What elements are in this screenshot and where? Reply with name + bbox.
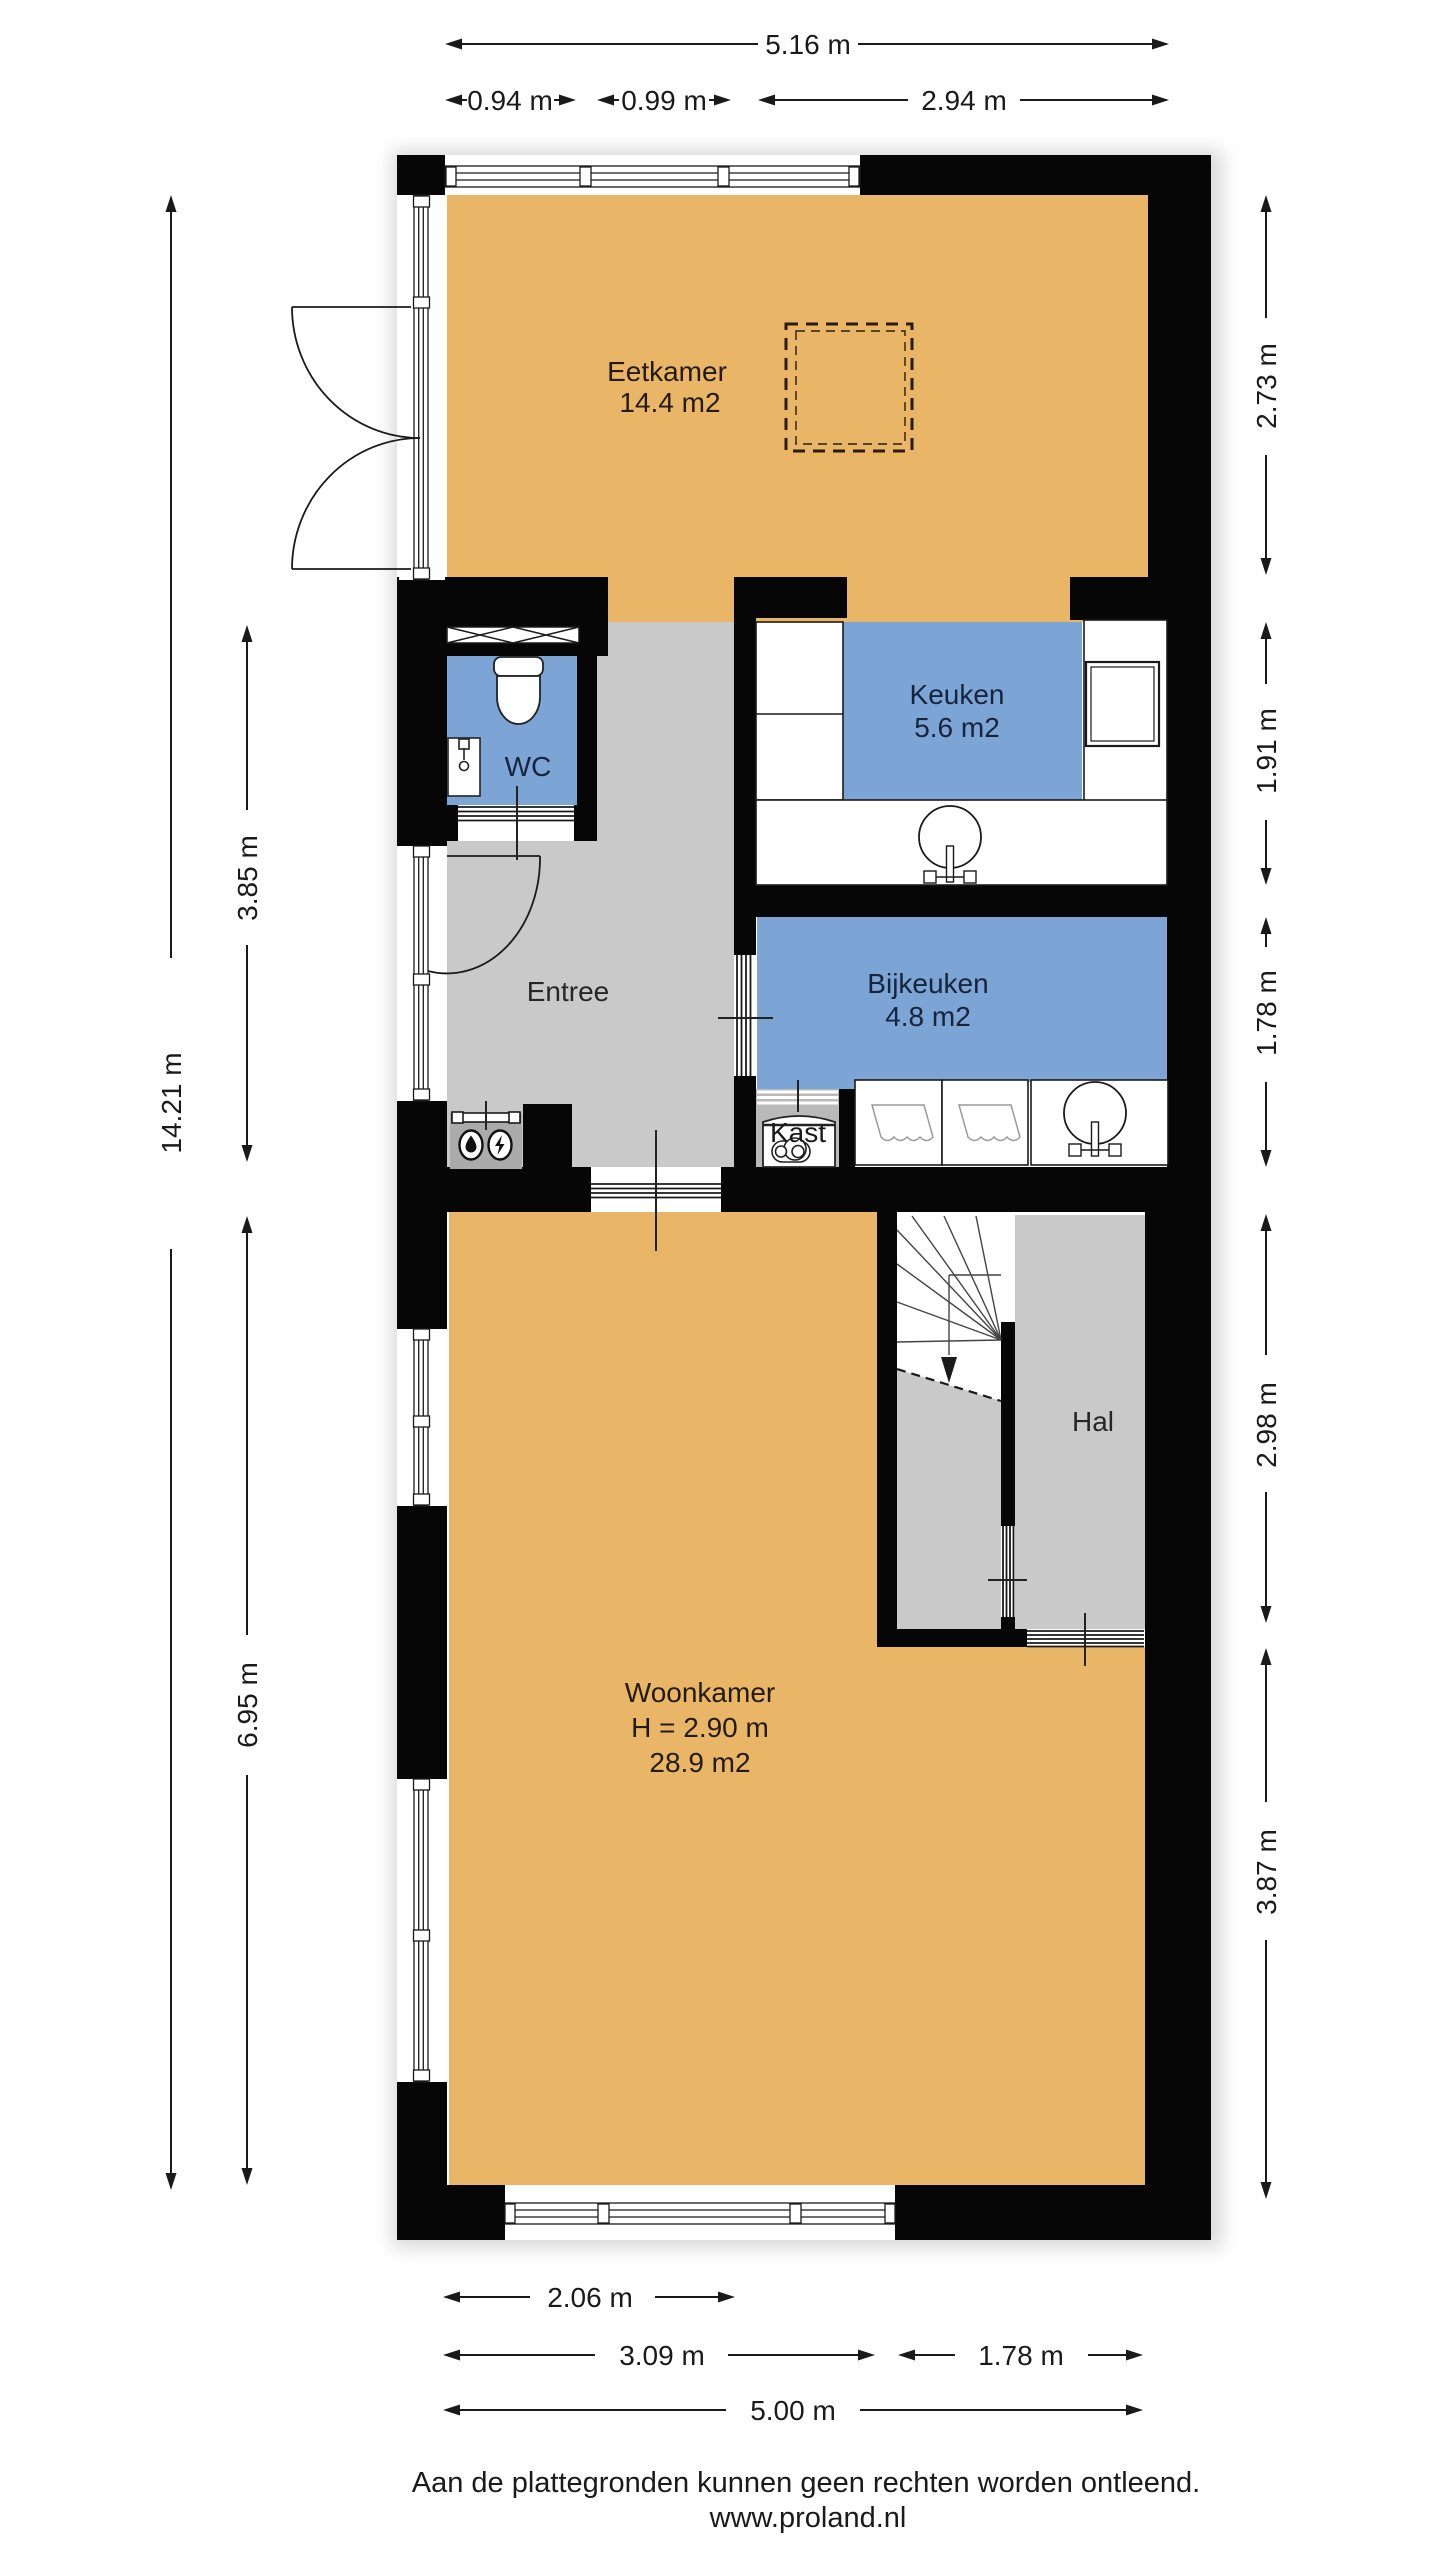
- svg-text:2.06 m: 2.06 m: [547, 2282, 633, 2313]
- svg-text:WC: WC: [505, 751, 552, 782]
- svg-text:5.6 m2: 5.6 m2: [914, 712, 1000, 743]
- svg-text:28.9 m2: 28.9 m2: [649, 1747, 750, 1778]
- svg-text:5.16 m: 5.16 m: [765, 29, 851, 60]
- svg-text:Woonkamer: Woonkamer: [625, 1677, 775, 1708]
- svg-text:Bijkeuken: Bijkeuken: [867, 968, 988, 999]
- svg-text:2.98 m: 2.98 m: [1251, 1382, 1282, 1468]
- svg-text:3.87 m: 3.87 m: [1251, 1829, 1282, 1915]
- svg-text:14.4 m2: 14.4 m2: [619, 387, 720, 418]
- svg-text:Aan de plattegronden kunnen ge: Aan de plattegronden kunnen geen rechten…: [412, 2467, 1200, 2499]
- svg-text:Kast: Kast: [770, 1117, 826, 1148]
- svg-text:5.00 m: 5.00 m: [750, 2395, 836, 2426]
- svg-text:Entree: Entree: [527, 976, 610, 1007]
- svg-text:1.78 m: 1.78 m: [1251, 970, 1282, 1056]
- svg-text:2.73 m: 2.73 m: [1251, 343, 1282, 429]
- svg-text:H = 2.90 m: H = 2.90 m: [631, 1712, 769, 1743]
- svg-text:Eetkamer: Eetkamer: [607, 356, 727, 387]
- svg-text:1.91 m: 1.91 m: [1251, 708, 1282, 794]
- svg-text:3.09 m: 3.09 m: [619, 2340, 705, 2371]
- svg-text:www.proland.nl: www.proland.nl: [709, 2502, 907, 2534]
- svg-text:Keuken: Keuken: [910, 679, 1005, 710]
- svg-text:0.99 m: 0.99 m: [621, 85, 707, 116]
- svg-text:0.94 m: 0.94 m: [467, 85, 553, 116]
- svg-text:4.8 m2: 4.8 m2: [885, 1001, 971, 1032]
- svg-text:6.95 m: 6.95 m: [232, 1662, 263, 1748]
- svg-text:3.85 m: 3.85 m: [232, 835, 263, 921]
- svg-text:1.78 m: 1.78 m: [978, 2340, 1064, 2371]
- svg-text:Hal: Hal: [1072, 1406, 1114, 1437]
- svg-text:2.94 m: 2.94 m: [921, 85, 1007, 116]
- svg-text:14.21 m: 14.21 m: [156, 1052, 187, 1153]
